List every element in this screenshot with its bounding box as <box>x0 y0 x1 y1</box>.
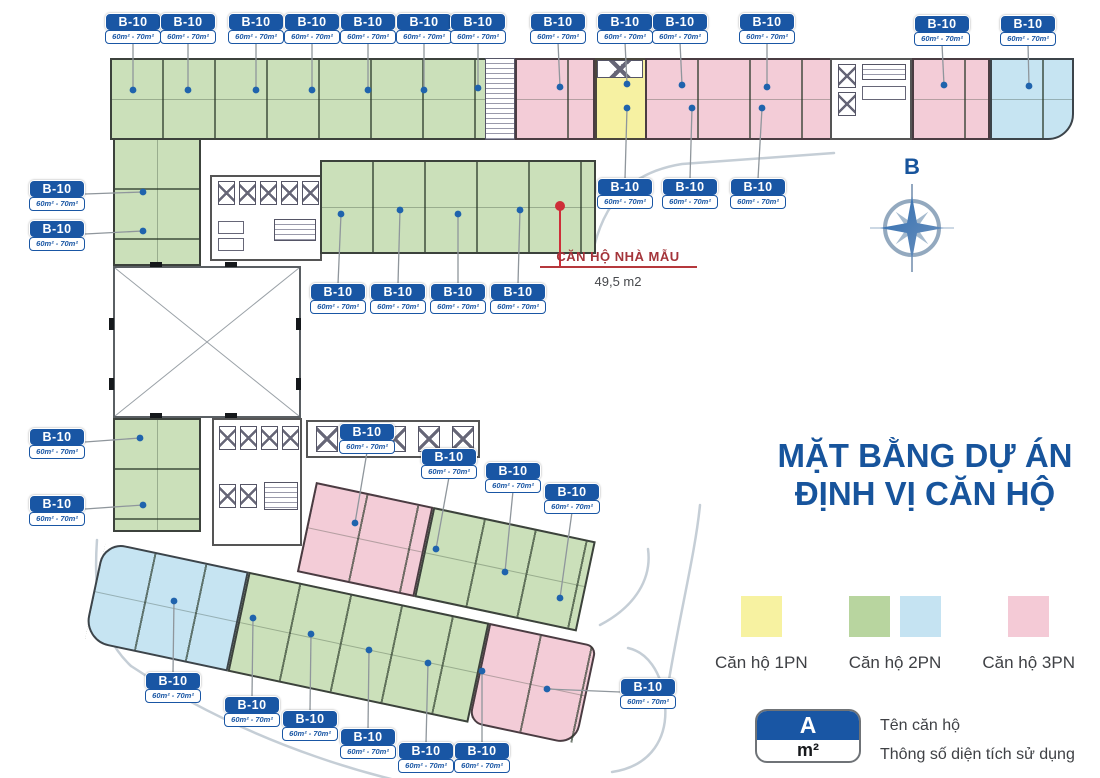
unit-chip-area: 60m² - 70m² <box>914 32 970 46</box>
unit-chip[interactable]: B-1060m² - 70m² <box>339 423 395 454</box>
unit-marker-dot <box>185 87 192 94</box>
unit-chip-code: B-10 <box>105 13 161 31</box>
legend-swatches <box>1008 596 1049 637</box>
legend-color-swatch <box>1008 596 1049 637</box>
unit-chip[interactable]: B-1060m² - 70m² <box>29 220 85 251</box>
unit-chip[interactable]: B-1060m² - 70m² <box>454 742 510 773</box>
chip-leader-line <box>1028 44 1029 86</box>
unit-chip[interactable]: B-1060m² - 70m² <box>370 283 426 314</box>
chip-leader-line <box>505 491 513 572</box>
unit-marker-dot <box>475 85 482 92</box>
unit-chip[interactable]: B-1060m² - 70m² <box>396 13 452 44</box>
unit-chip-code: B-10 <box>228 13 284 31</box>
unit-chip-code: B-10 <box>662 178 718 196</box>
unit-chip[interactable]: B-1060m² - 70m² <box>620 678 676 709</box>
unit-marker-dot <box>308 631 315 638</box>
unit-chip-area: 60m² - 70m² <box>228 30 284 44</box>
unit-marker-dot <box>338 211 345 218</box>
compass-north-label: B <box>890 154 934 180</box>
unit-chip[interactable]: B-1060m² - 70m² <box>662 178 718 209</box>
unit-marker-dot <box>679 82 686 89</box>
unit-chip-code: B-10 <box>652 13 708 31</box>
chip-leader-line <box>355 452 367 523</box>
unit-chip-code: B-10 <box>597 178 653 196</box>
unit-marker-dot <box>557 84 564 91</box>
unit-chip-area: 60m² - 70m² <box>282 727 338 741</box>
unit-chip[interactable]: B-1060m² - 70m² <box>29 428 85 459</box>
unit-chip-area: 60m² - 70m² <box>454 759 510 773</box>
unit-marker-dot <box>455 211 462 218</box>
unit-chip-code: B-10 <box>430 283 486 301</box>
unit-chip-area: 60m² - 70m² <box>1000 32 1056 46</box>
chip-leader-line <box>558 42 560 87</box>
page-title-line1: MẶT BẰNG DỰ ÁN <box>755 437 1095 475</box>
unit-chip-code: B-10 <box>914 15 970 33</box>
unit-chip-area: 60m² - 70m² <box>224 713 280 727</box>
page-title: MẶT BẰNG DỰ ÁN ĐỊNH VỊ CĂN HỘ <box>755 437 1095 513</box>
unit-marker-dot <box>624 81 631 88</box>
unit-chip-area: 60m² - 70m² <box>662 195 718 209</box>
unit-chip-area: 60m² - 70m² <box>284 30 340 44</box>
legend-swatches <box>849 596 941 637</box>
unit-marker-dot <box>140 502 147 509</box>
legend-label: Căn hộ 3PN <box>982 653 1075 673</box>
unit-chip-code: B-10 <box>620 678 676 696</box>
unit-chip[interactable]: B-1060m² - 70m² <box>739 13 795 44</box>
unit-chip-area: 60m² - 70m² <box>485 479 541 493</box>
unit-chip-code: B-10 <box>29 180 85 198</box>
unit-chip[interactable]: B-1060m² - 70m² <box>29 180 85 211</box>
unit-chip-code: B-10 <box>340 728 396 746</box>
legend-label: Căn hộ 2PN <box>849 653 942 673</box>
unit-chip-code: B-10 <box>454 742 510 760</box>
unit-chip[interactable]: B-1060m² - 70m² <box>730 178 786 209</box>
unit-chip-area: 60m² - 70m² <box>739 30 795 44</box>
unit-chip-area: 60m² - 70m² <box>105 30 161 44</box>
unit-marker-dot <box>479 668 486 675</box>
chip-leader-line <box>690 108 692 179</box>
chip-leader-line <box>758 108 762 179</box>
unit-chip-code: B-10 <box>396 13 452 31</box>
unit-marker-dot <box>309 87 316 94</box>
sample-unit-area: 49,5 m2 <box>533 274 703 289</box>
unit-marker-dot <box>171 598 178 605</box>
unit-marker-dot <box>624 105 631 112</box>
unit-chip-code: B-10 <box>340 13 396 31</box>
unit-marker-dot <box>140 189 147 196</box>
unit-marker-dot <box>1026 83 1033 90</box>
unit-chip[interactable]: B-1060m² - 70m² <box>421 448 477 479</box>
unit-marker-dot <box>250 615 257 622</box>
unit-chip-area: 60m² - 70m² <box>490 300 546 314</box>
unit-chip-area: 60m² - 70m² <box>29 445 85 459</box>
unit-chip-area: 60m² - 70m² <box>29 237 85 251</box>
unit-chip[interactable]: B-1060m² - 70m² <box>284 13 340 44</box>
chip-leader-line <box>338 214 341 284</box>
unit-chip-code: B-10 <box>310 283 366 301</box>
unit-chip[interactable]: B-1060m² - 70m² <box>340 13 396 44</box>
unit-chip-code: B-10 <box>597 13 653 31</box>
unit-marker-dot <box>130 87 137 94</box>
chip-leader-line <box>942 44 944 85</box>
unit-chip[interactable]: B-1060m² - 70m² <box>597 178 653 209</box>
unit-chip[interactable]: B-1060m² - 70m² <box>29 495 85 526</box>
chip-leader-line <box>426 663 428 743</box>
unit-chip-area: 60m² - 70m² <box>340 745 396 759</box>
compass-icon <box>868 184 956 272</box>
unit-chip-area: 60m² - 70m² <box>597 30 653 44</box>
unit-chip[interactable]: B-1060m² - 70m² <box>228 13 284 44</box>
unit-marker-dot <box>366 647 373 654</box>
key-code-description: Tên căn hộ <box>880 711 1075 740</box>
unit-chip[interactable]: B-1060m² - 70m² <box>282 710 338 741</box>
key-unit-description: Thông số diện tích sử dụng <box>880 740 1075 769</box>
unit-marker-dot <box>502 569 509 576</box>
chip-leader-line <box>436 477 449 549</box>
unit-chip-code: B-10 <box>530 13 586 31</box>
chip-leader-line <box>368 650 369 729</box>
unit-chip-code: B-10 <box>739 13 795 31</box>
key-legend-unit: m² <box>757 740 859 761</box>
unit-chip-area: 60m² - 70m² <box>160 30 216 44</box>
unit-chip[interactable]: B-1060m² - 70m² <box>530 13 586 44</box>
unit-chip-code: B-10 <box>282 710 338 728</box>
page-title-line2: ĐỊNH VỊ CĂN HỘ <box>755 475 1095 513</box>
unit-chip-area: 60m² - 70m² <box>145 689 201 703</box>
unit-chip-area: 60m² - 70m² <box>730 195 786 209</box>
chip-leader-line <box>398 210 400 284</box>
unit-chip[interactable]: B-1060m² - 70m² <box>224 696 280 727</box>
unit-chip[interactable]: B-1060m² - 70m² <box>310 283 366 314</box>
key-legend-descriptions: Tên căn hộ Thông số diện tích sử dụng <box>880 711 1075 769</box>
unit-marker-dot <box>557 595 564 602</box>
unit-chip-area: 60m² - 70m² <box>530 30 586 44</box>
unit-chip[interactable]: B-1060m² - 70m² <box>340 728 396 759</box>
unit-chip[interactable]: B-1060m² - 70m² <box>1000 15 1056 46</box>
unit-chip-code: B-10 <box>224 696 280 714</box>
unit-marker-dot <box>365 87 372 94</box>
legend-item: Căn hộ 3PN <box>982 596 1075 673</box>
unit-marker-dot <box>433 546 440 553</box>
unit-chip-area: 60m² - 70m² <box>29 197 85 211</box>
unit-chip-area: 60m² - 70m² <box>398 759 454 773</box>
key-legend-code: A <box>757 711 859 740</box>
legend-color-swatch <box>741 596 782 637</box>
unit-chip-area: 60m² - 70m² <box>421 465 477 479</box>
key-legend-box: A m² <box>755 709 861 763</box>
unit-marker-dot <box>941 82 948 89</box>
unit-marker-dot <box>352 520 359 527</box>
unit-chip[interactable]: B-1060m² - 70m² <box>485 462 541 493</box>
unit-chip-area: 60m² - 70m² <box>340 30 396 44</box>
unit-chip[interactable]: B-1060m² - 70m² <box>398 742 454 773</box>
unit-chip-code: B-10 <box>29 428 85 446</box>
unit-marker-dot <box>397 207 404 214</box>
unit-chip-area: 60m² - 70m² <box>430 300 486 314</box>
legend-color-swatch <box>900 596 941 637</box>
unit-chip-area: 60m² - 70m² <box>339 440 395 454</box>
unit-chip[interactable]: B-1060m² - 70m² <box>145 672 201 703</box>
unit-chip-code: B-10 <box>450 13 506 31</box>
unit-chip-area: 60m² - 70m² <box>396 30 452 44</box>
chip-leader-line <box>85 192 143 194</box>
unit-chip-code: B-10 <box>284 13 340 31</box>
unit-chip[interactable]: B-1060m² - 70m² <box>652 13 708 44</box>
legend-color-swatch <box>849 596 890 637</box>
unit-chip[interactable]: B-1060m² - 70m² <box>914 15 970 46</box>
legend-label: Căn hộ 1PN <box>715 653 808 673</box>
unit-marker-dot <box>140 228 147 235</box>
unit-chip-area: 60m² - 70m² <box>370 300 426 314</box>
unit-chip-area: 60m² - 70m² <box>597 195 653 209</box>
unit-marker-dot <box>764 84 771 91</box>
legend-item: Căn hộ 1PN <box>715 596 808 673</box>
sample-unit-underline <box>540 266 697 268</box>
unit-chip[interactable]: B-1060m² - 70m² <box>430 283 486 314</box>
chip-leader-line <box>85 231 143 234</box>
unit-chip-area: 60m² - 70m² <box>620 695 676 709</box>
unit-chip-area: 60m² - 70m² <box>652 30 708 44</box>
unit-chip[interactable]: B-1060m² - 70m² <box>160 13 216 44</box>
chip-leader-line <box>680 42 682 85</box>
unit-chip-code: B-10 <box>485 462 541 480</box>
unit-chip[interactable]: B-1060m² - 70m² <box>105 13 161 44</box>
chip-leader-line <box>310 634 311 711</box>
unit-marker-dot <box>421 87 428 94</box>
unit-chip-code: B-10 <box>160 13 216 31</box>
unit-marker-dot <box>759 105 766 112</box>
unit-chip-code: B-10 <box>1000 15 1056 33</box>
unit-marker-dot <box>517 207 524 214</box>
unit-chip-area: 60m² - 70m² <box>450 30 506 44</box>
unit-chip[interactable]: B-1060m² - 70m² <box>450 13 506 44</box>
unit-chip-code: B-10 <box>29 495 85 513</box>
chip-leader-line <box>560 512 572 598</box>
chip-leader-line <box>85 438 140 442</box>
unit-type-legend: Căn hộ 1PNCăn hộ 2PNCăn hộ 3PN <box>715 596 1075 673</box>
unit-marker-dot <box>689 105 696 112</box>
unit-chip[interactable]: B-1060m² - 70m² <box>544 483 600 514</box>
chip-leader-line <box>85 505 143 509</box>
unit-chip-area: 60m² - 70m² <box>310 300 366 314</box>
unit-chip-code: B-10 <box>398 742 454 760</box>
unit-marker-dot <box>425 660 432 667</box>
unit-chip-code: B-10 <box>421 448 477 466</box>
legend-swatches <box>741 596 782 637</box>
unit-marker-dot <box>544 686 551 693</box>
sample-unit-name: CĂN HỘ NHÀ MẪU <box>533 249 703 264</box>
unit-chip-code: B-10 <box>544 483 600 501</box>
unit-chip-area: 60m² - 70m² <box>29 512 85 526</box>
chip-leader-line <box>625 108 627 179</box>
chip-leader-line <box>252 618 253 697</box>
unit-marker-dot <box>253 87 260 94</box>
chip-leader-line <box>625 42 627 84</box>
unit-chip-code: B-10 <box>730 178 786 196</box>
unit-chip-code: B-10 <box>29 220 85 238</box>
unit-chip-code: B-10 <box>370 283 426 301</box>
unit-marker-dot <box>137 435 144 442</box>
chip-leader-line <box>173 601 174 673</box>
unit-chip-area: 60m² - 70m² <box>544 500 600 514</box>
unit-chip-code: B-10 <box>339 423 395 441</box>
chip-leader-line <box>547 689 620 692</box>
unit-chip-code: B-10 <box>145 672 201 690</box>
legend-item: Căn hộ 2PN <box>849 596 942 673</box>
chip-leader-line <box>518 210 520 284</box>
unit-chip[interactable]: B-1060m² - 70m² <box>597 13 653 44</box>
site-plan-page: B-1060m² - 70m²B-1060m² - 70m²B-1060m² -… <box>0 0 1100 778</box>
